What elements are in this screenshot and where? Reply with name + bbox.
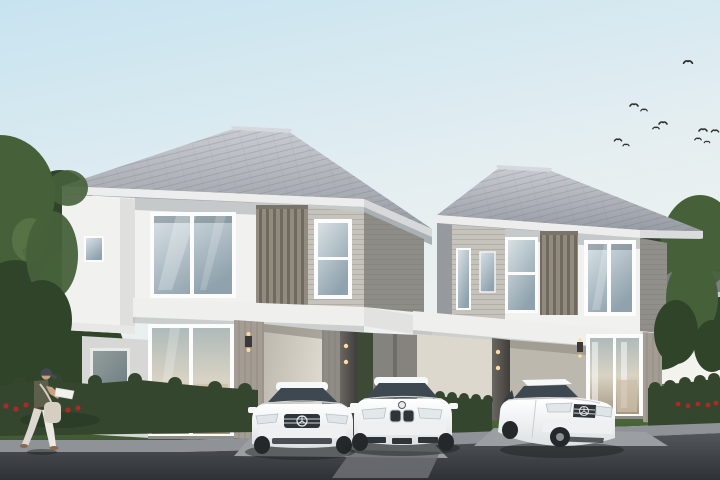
wall-sconce-icon xyxy=(577,342,583,352)
slat-screen xyxy=(256,205,308,307)
headlight-right xyxy=(596,406,612,417)
star-grille xyxy=(573,404,596,418)
upper-window-mid xyxy=(505,237,538,313)
upper-window-right-2 xyxy=(584,240,636,316)
wall-sconce-icon xyxy=(245,336,252,347)
shoulder-bag xyxy=(44,402,61,423)
headlight-left xyxy=(256,414,278,424)
rendering-canvas xyxy=(0,0,720,480)
headlight-right xyxy=(418,408,442,419)
fascia-side xyxy=(640,230,703,239)
upper-siding-left xyxy=(452,225,505,329)
roundel-badge-icon xyxy=(399,402,406,409)
star-grille xyxy=(284,414,320,428)
small-window xyxy=(84,236,104,262)
headlight-right xyxy=(326,414,348,424)
upper-window-right xyxy=(314,219,352,299)
slat-screen-2 xyxy=(540,231,578,315)
narrow-window-dark xyxy=(480,252,495,292)
headlight-left xyxy=(362,408,386,419)
upper-siding-right xyxy=(308,207,364,307)
scene-rendering xyxy=(0,0,720,480)
headlight-left xyxy=(546,403,572,412)
upper-window-left xyxy=(150,212,236,298)
